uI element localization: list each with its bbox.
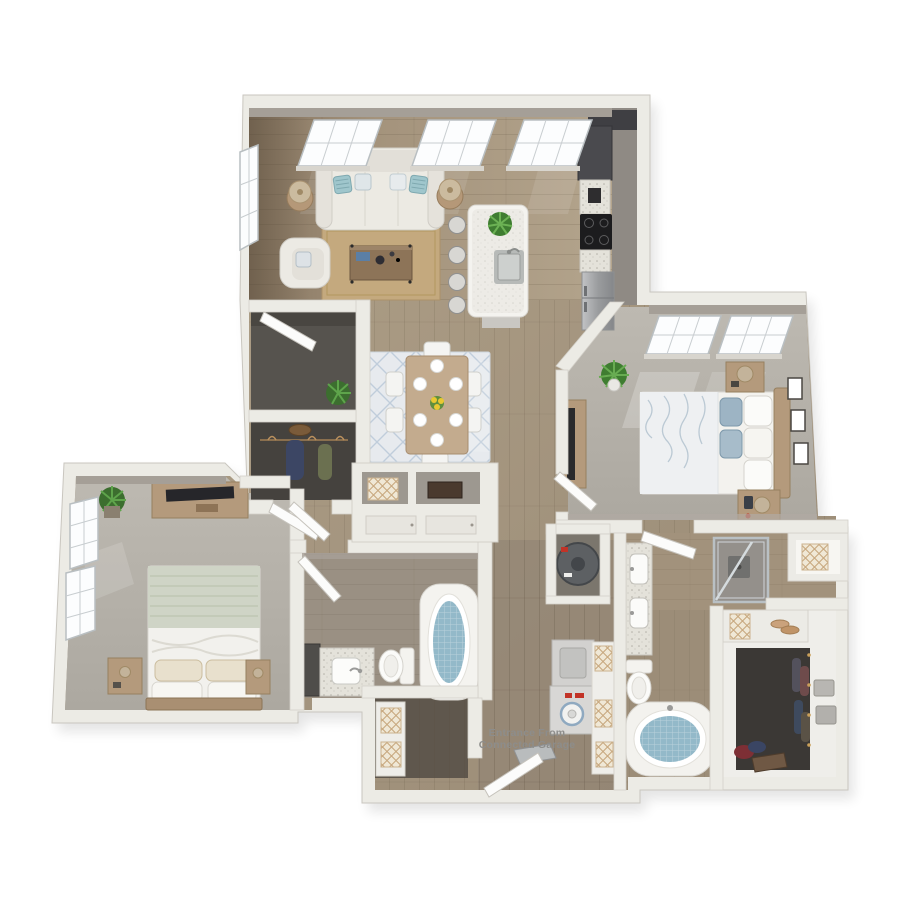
white-pillow: [744, 460, 772, 490]
faucet: [630, 611, 634, 615]
bedroom2-bed: [146, 566, 262, 710]
dryer: [552, 640, 594, 686]
dining-chair: [386, 408, 403, 432]
place-setting: [431, 434, 444, 447]
headboard: [146, 698, 262, 710]
side-table-left: [287, 181, 313, 211]
window: [240, 145, 258, 250]
bar-stool: [449, 274, 466, 291]
master-bed: [640, 388, 790, 498]
floor-plan-rendering: Entrance From Connected Garage: [0, 0, 900, 900]
dining-chair: [386, 372, 403, 396]
navy-garment: [286, 440, 304, 480]
hat: [289, 425, 311, 436]
lattice-basket: [802, 544, 828, 570]
table-lamp: [754, 497, 770, 513]
bar-stool: [449, 297, 466, 314]
kitchen-wall-face: [612, 108, 637, 305]
white-pillow: [744, 396, 772, 426]
headboard: [774, 388, 790, 498]
picture-frame: [788, 378, 802, 399]
gold-hook: [807, 713, 811, 717]
cooktop: [580, 214, 612, 250]
gold-hook: [807, 743, 811, 747]
place-setting: [431, 360, 444, 373]
lattice-basket: [368, 478, 398, 500]
bar-stool: [449, 217, 466, 234]
lamp: [120, 667, 131, 678]
island-sink: [494, 249, 524, 284]
picture-frame: [791, 410, 805, 431]
floor-plan-canvas: Entrance From Connected Garage: [0, 0, 900, 900]
window: [70, 497, 98, 569]
armchair: [280, 238, 330, 288]
bedroom2-tv-console: [152, 482, 248, 518]
washer-button: [565, 693, 572, 698]
shoes: [781, 626, 799, 634]
console-drawer: [196, 504, 218, 512]
white-pillow: [744, 428, 772, 458]
cabinet-door[interactable]: [366, 516, 416, 534]
cabinet-door[interactable]: [426, 516, 476, 534]
toilet: [626, 660, 652, 704]
lattice-basket: [595, 700, 612, 727]
place-setting: [450, 378, 463, 391]
coffee-maker: [588, 188, 601, 203]
blue-pillow: [720, 430, 742, 458]
wood-box: [428, 482, 462, 498]
vase: [376, 256, 385, 265]
coffee-table: [350, 244, 412, 283]
centerpiece-flowers: [430, 396, 444, 410]
gold-hook: [807, 653, 811, 657]
island-plant: [488, 212, 512, 236]
counter: [580, 250, 610, 272]
glass-shower: [714, 538, 768, 602]
bedroom2-nightstand-left: [108, 658, 142, 694]
blue-pillow: [720, 398, 742, 426]
planter: [104, 506, 120, 518]
lattice-basket: [381, 708, 401, 733]
lattice-basket: [596, 742, 613, 767]
hall-built-in: [352, 463, 498, 542]
sage-blanket: [148, 566, 260, 628]
table-lamp: [737, 366, 753, 382]
place-setting: [414, 414, 427, 427]
garage-entrance-label: Entrance From Connected Garage: [479, 727, 576, 751]
water-heater-valve: [561, 547, 568, 552]
toilet: [379, 648, 414, 684]
side-table-right: [437, 179, 463, 209]
storage-box: [814, 680, 834, 696]
double-vanity: [626, 543, 652, 655]
lamp: [253, 668, 263, 678]
patterned-pillow: [296, 252, 311, 267]
sink: [332, 658, 360, 684]
decor-item: [390, 252, 395, 257]
dining-furniture: [362, 342, 490, 469]
picture-frame: [794, 443, 808, 464]
soaking-tub: [626, 702, 714, 776]
clothes-pile: [748, 741, 766, 753]
kitchen-island: [468, 205, 528, 328]
storage-box: [816, 706, 836, 724]
window: [66, 566, 95, 640]
water-heater-closet: [556, 534, 600, 596]
laundry-shelf: [592, 642, 614, 774]
patterned-pillow: [155, 660, 202, 681]
bar-stool: [449, 247, 466, 264]
place-setting: [450, 414, 463, 427]
lattice-basket: [381, 742, 401, 767]
decor-item: [396, 258, 400, 262]
tub-water: [433, 601, 465, 683]
blue-book: [356, 252, 370, 261]
linen-niche: [788, 533, 848, 581]
decor-item: [731, 381, 739, 387]
lattice-basket: [730, 614, 750, 639]
tub-faucet: [667, 705, 673, 711]
accent-pillow: [355, 174, 371, 190]
teal-pillow: [409, 175, 428, 194]
soaking-tub: [420, 584, 478, 700]
gold-hook: [807, 683, 811, 687]
washer-button: [575, 693, 584, 698]
place-setting: [414, 378, 427, 391]
lattice-basket: [595, 646, 612, 671]
tub-water: [640, 716, 700, 762]
bedroom2-nightstand-right: [246, 660, 270, 694]
teal-pillow: [333, 175, 352, 194]
plant-pot: [608, 379, 620, 391]
faucet: [630, 567, 634, 571]
phone: [744, 496, 753, 509]
nightstand-top: [726, 362, 764, 392]
accent-pillow: [390, 174, 406, 190]
label-line-2: Connected Garage: [479, 739, 576, 751]
label-line-1: Entrance From: [489, 727, 566, 739]
olive-garment: [318, 444, 332, 480]
